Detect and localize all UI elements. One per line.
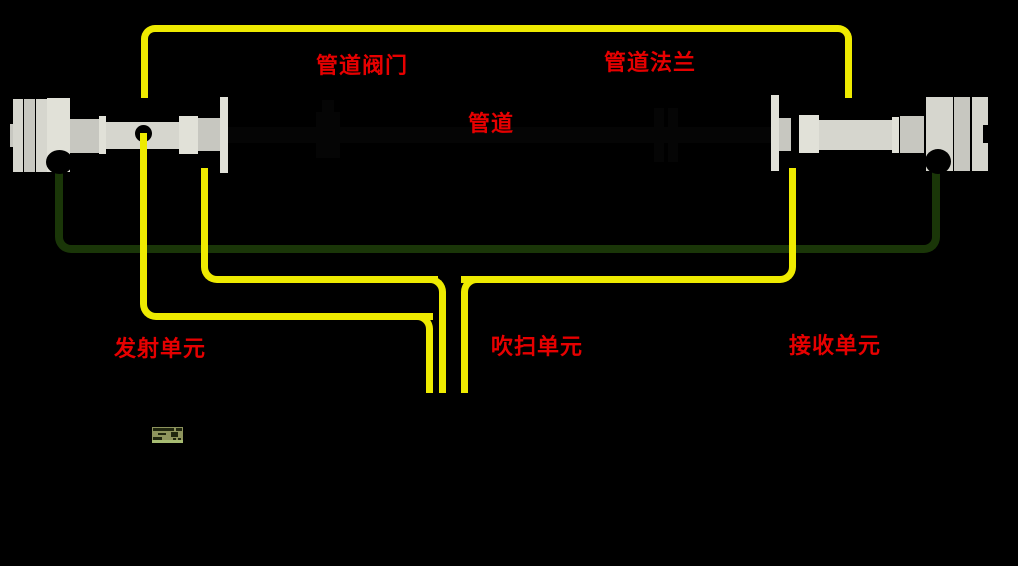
receiver-ring	[892, 117, 899, 153]
purge-tube-top-run	[141, 25, 852, 98]
lcd-pixel-text	[153, 428, 174, 431]
receiver-probe-tube	[819, 120, 892, 150]
transmitter-ring	[99, 116, 106, 154]
receiver-collar	[799, 115, 819, 153]
lcd-pixel-text	[171, 432, 178, 437]
lcd-bottom-strip	[152, 440, 183, 443]
receiver-hub	[779, 118, 791, 151]
transmitter-housing-segment-1	[13, 99, 23, 172]
lcd-pixel-text	[158, 433, 166, 435]
purge-tube-left-flange-run	[201, 168, 438, 283]
label-pipe-flange: 管道法兰	[604, 51, 696, 77]
purge-tube-left-flange-drop	[426, 276, 446, 393]
purge-tube-right-flange-run	[461, 168, 796, 283]
pipe-flange-plate-b	[668, 108, 678, 162]
transmitter-neck	[70, 119, 100, 153]
transmitter-housing-segment-2	[24, 99, 35, 172]
receiver-housing-segment-2	[954, 97, 970, 171]
receiver-end-notch	[983, 125, 988, 143]
receiver-flange-plate	[771, 95, 779, 171]
lcd-pixel-text	[176, 428, 182, 431]
pipe-flange-plate-a	[654, 108, 664, 162]
receiver-cable-gland	[925, 149, 951, 174]
label-purge-unit: 吹扫单元	[491, 335, 583, 361]
label-pipe-valve: 管道阀门	[316, 54, 408, 80]
transmitter-cable-gland	[46, 150, 73, 174]
diagram-canvas: 管道阀门 管道法兰 管道 发射单元 吹扫单元 接收单元	[0, 0, 1018, 566]
label-receiver-unit: 接收单元	[789, 334, 881, 360]
pipe-valve-stem	[322, 100, 334, 114]
lcd-display	[152, 427, 183, 443]
label-pipe: 管道	[468, 112, 514, 138]
label-transmitter-unit: 发射单元	[114, 337, 206, 363]
receiver-neck-block	[900, 116, 924, 153]
purge-tube-right-flange-drop	[461, 276, 481, 393]
